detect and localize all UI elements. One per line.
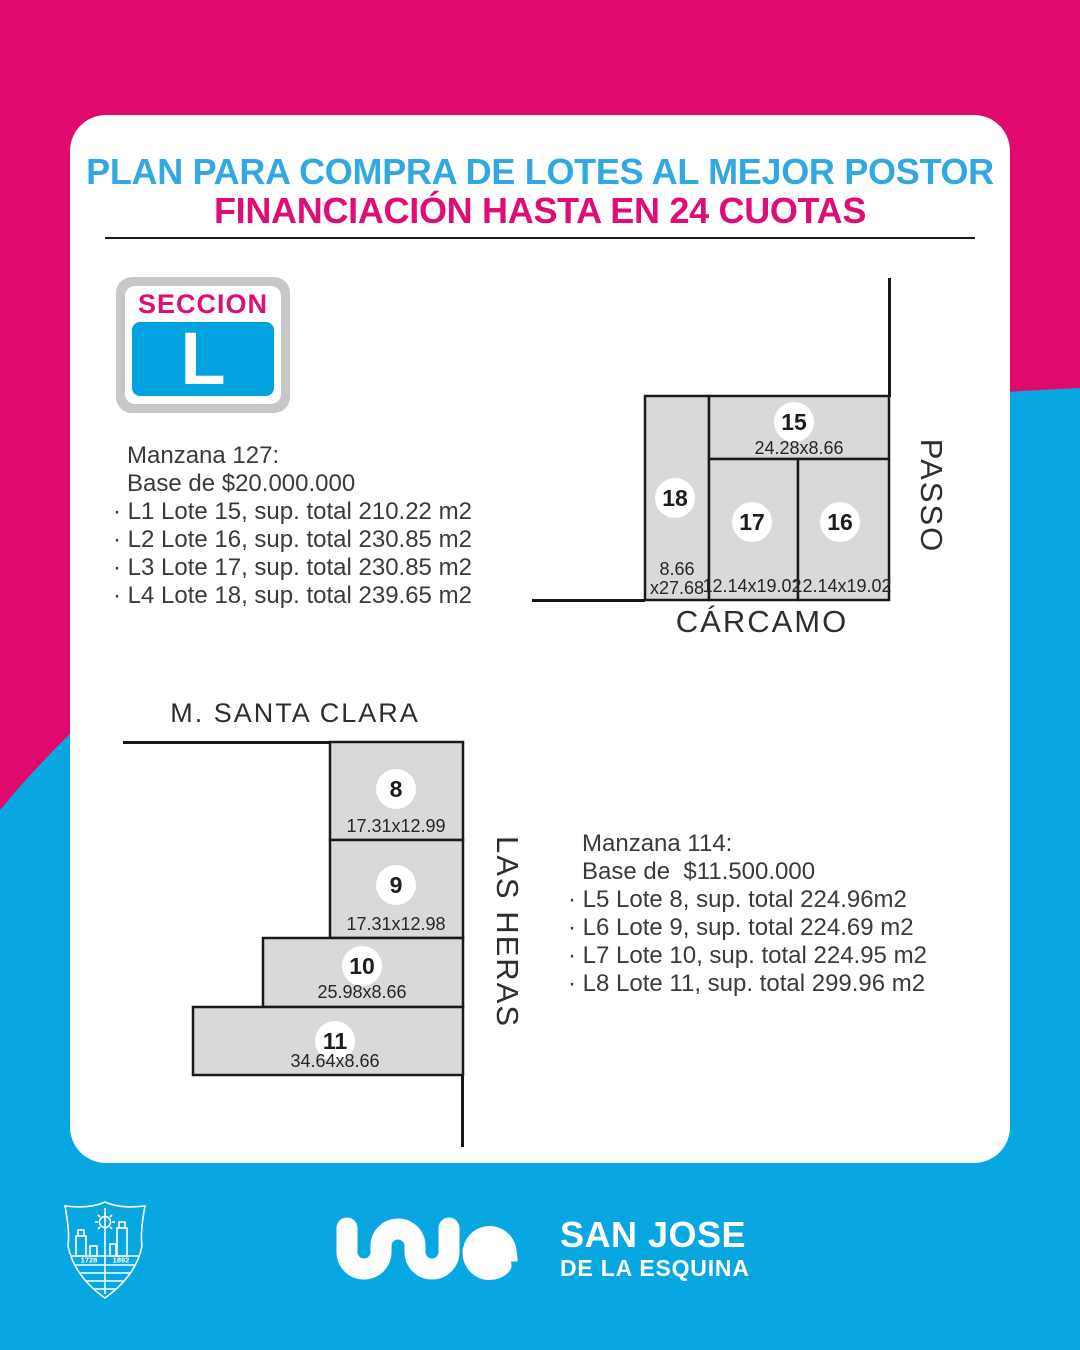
manzana-114-title: Manzana 114:: [568, 830, 927, 858]
brand-tagline: DE LA ESQUINA: [560, 1255, 750, 1282]
manzana-114-info: Manzana 114: Base de $11.500.000 · L5 Lo…: [568, 830, 927, 998]
lot-8-dimensions: 17.31x12.99: [346, 816, 445, 836]
lot-9-dimensions: 17.31x12.98: [346, 914, 445, 934]
manzana-114-base-price: Base de $11.500.000: [568, 858, 927, 886]
seccion-badge-letter: L: [180, 322, 225, 396]
street-label-las-heras: LAS HERAS: [490, 836, 525, 1028]
lot-11-dimensions: 34.64x8.66: [290, 1051, 379, 1071]
street-label-santa-clara: M. SANTA CLARA: [170, 698, 420, 728]
brand-logo-icon: [335, 1214, 535, 1288]
lot-8-number: 8: [390, 776, 403, 802]
crest-year-left: 1728: [81, 1256, 98, 1265]
title-divider: [105, 237, 975, 239]
lot-17-dimensions: 12.14x19.02: [702, 576, 801, 596]
lot-16-number: 16: [827, 509, 853, 535]
lot-9-number: 9: [390, 872, 403, 898]
manzana-127-base-price: Base de $20.000.000: [113, 470, 472, 498]
lot-15-number: 15: [781, 409, 807, 435]
page-subtitle: FINANCIACIÓN HASTA EN 24 CUOTAS: [70, 192, 1010, 230]
manzana-127-lot-item: · L4 Lote 18, sup. total 239.65 m2: [113, 582, 472, 610]
crest-year-right: 1892: [113, 1256, 130, 1265]
seccion-badge: SECCION L: [116, 277, 290, 413]
manzana-127-title: Manzana 127:: [113, 442, 472, 470]
page-title: PLAN PARA COMPRA DE LOTES AL MEJOR POSTO…: [70, 153, 1010, 191]
lot-18-number: 18: [662, 485, 688, 511]
street-label-carcamo: CÁRCAMO: [676, 604, 848, 639]
seccion-badge-letter-box: L: [132, 322, 274, 396]
manzana-114-lot-item: · L7 Lote 10, sup. total 224.95 m2: [568, 942, 927, 970]
lot-10-dimensions: 25.98x8.66: [317, 982, 406, 1002]
manzana-114-lot-item: · L5 Lote 8, sup. total 224.96m2: [568, 886, 927, 914]
manzana-114-lot-item: · L6 Lote 9, sup. total 224.69 m2: [568, 914, 927, 942]
manzana-114-lot-item: · L8 Lote 11, sup. total 299.96 m2: [568, 970, 927, 998]
municipal-crest-icon: 1728 1892: [60, 1198, 150, 1302]
lot-17-number: 17: [739, 509, 765, 535]
seccion-badge-inner: SECCION L: [125, 286, 281, 404]
diagram-santa-clara-block: M. SANTA CLARA 8 17.31x12.99 9 17.31x12.…: [105, 695, 535, 1165]
main-card: PLAN PARA COMPRA DE LOTES AL MEJOR POSTO…: [70, 115, 1010, 1163]
brand-name: SAN JOSE: [560, 1217, 750, 1253]
manzana-127-lot-item: · L3 Lote 17, sup. total 230.85 m2: [113, 554, 472, 582]
poster-canvas: PLAN PARA COMPRA DE LOTES AL MEJOR POSTO…: [0, 0, 1080, 1350]
lot-15-dimensions: 24.28x8.66: [754, 438, 843, 458]
lot-18-dimensions-line1: 8.66: [659, 559, 694, 579]
lot-16-dimensions: 12.14x19.02: [792, 576, 891, 596]
lot-10-number: 10: [349, 953, 375, 979]
street-label-passo: PASSO: [914, 439, 949, 554]
diagram-carcamo-block: 15 24.28x8.66 18 8.66 x27.68 17 12.14x19…: [520, 270, 990, 670]
manzana-127-lot-item: · L1 Lote 15, sup. total 210.22 m2: [113, 498, 472, 526]
manzana-127-info: Manzana 127: Base de $20.000.000 · L1 Lo…: [113, 442, 472, 610]
manzana-127-lot-item: · L2 Lote 16, sup. total 230.85 m2: [113, 526, 472, 554]
brand-text-block: SAN JOSE DE LA ESQUINA: [560, 1217, 750, 1282]
lot-18-dimensions-line2: x27.68: [650, 578, 704, 598]
